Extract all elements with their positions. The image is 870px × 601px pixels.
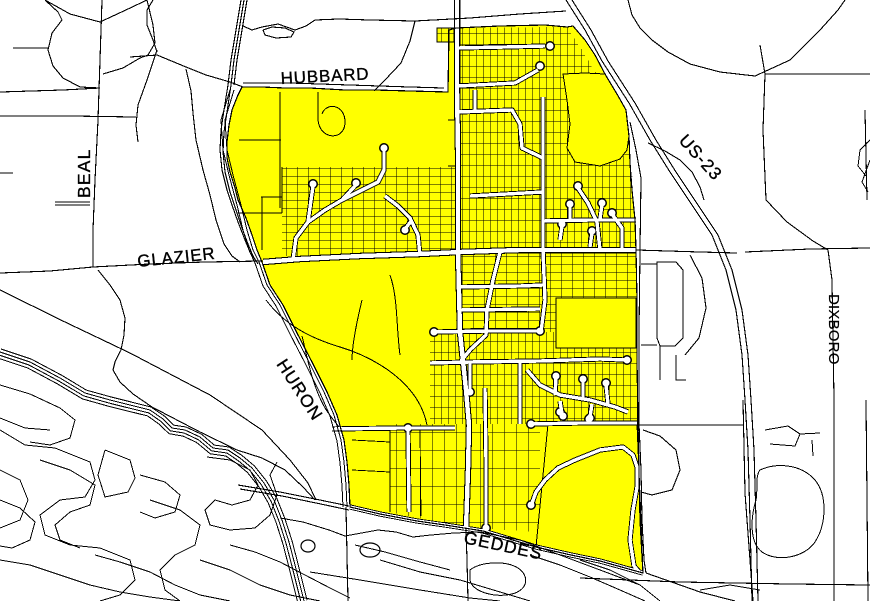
svg-text:BEAL: BEAL bbox=[74, 148, 94, 198]
svg-text:DIXBORO: DIXBORO bbox=[825, 294, 842, 365]
